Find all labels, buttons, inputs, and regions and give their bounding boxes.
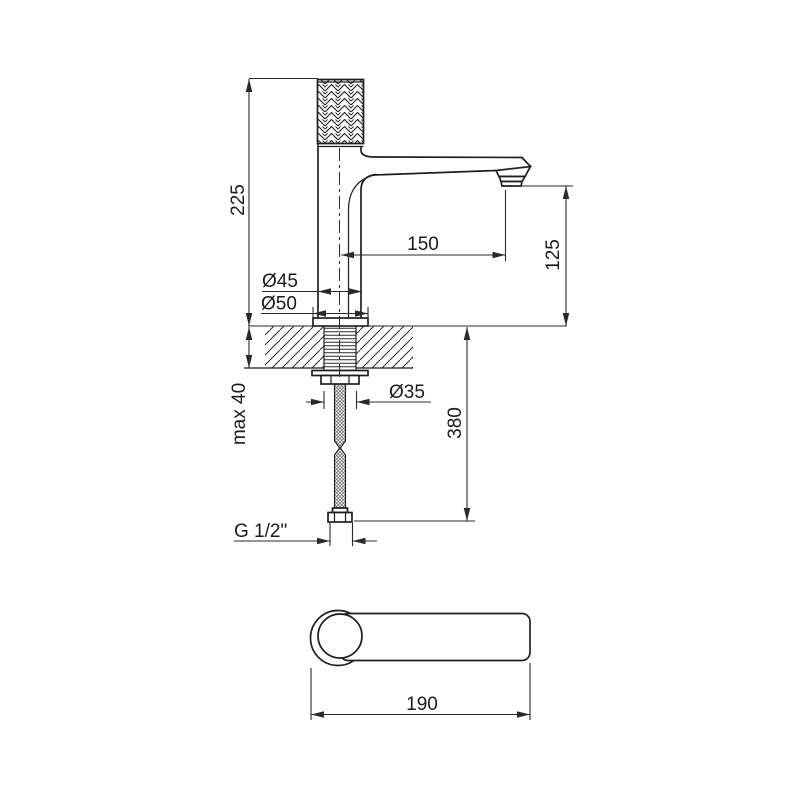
arrowhead-inward-right [317, 538, 330, 545]
arrowhead-down [464, 508, 471, 521]
aerator-step-1 [496, 167, 531, 177]
fitting-hex [328, 513, 352, 523]
arrowhead-left [313, 310, 326, 317]
dim-deck-thickness: max 40 [229, 327, 252, 445]
arrowhead-inward-right [311, 399, 324, 406]
arrowhead-right [493, 252, 506, 259]
dim-label-max40: max 40 [229, 383, 250, 445]
dim-outlet-height: 125 [514, 186, 573, 326]
dim-label-190: 190 [406, 694, 438, 715]
dim-label-d50: Ø50 [261, 294, 297, 315]
dim-label-150: 150 [407, 234, 439, 255]
dim-label-380: 380 [445, 407, 466, 439]
spout-tip-slant [522, 158, 531, 167]
aerator [496, 167, 531, 187]
spout-top-edge [361, 147, 522, 158]
faucet-top-view [311, 611, 531, 666]
arrowhead-down [563, 313, 570, 326]
arrowhead-left [341, 252, 354, 259]
arrowhead-inward-left [357, 399, 370, 406]
dim-label-d45: Ø45 [262, 271, 298, 292]
aerator-step-3 [501, 182, 522, 187]
arrowhead-left [318, 288, 331, 295]
body-outline-circle [318, 614, 362, 658]
column-right-edge [361, 175, 376, 319]
spout [361, 147, 531, 187]
arrowhead-up [464, 327, 471, 340]
dim-spout-reach: 150 [341, 190, 506, 261]
arrowhead-inward-left [353, 538, 366, 545]
dim-label-thread: G 1/2" [234, 521, 287, 542]
dim-top-view-length: 190 [311, 663, 530, 720]
dim-label-125: 125 [543, 239, 564, 271]
base-flange [313, 318, 368, 326]
spout-under-edge [374, 171, 496, 176]
dim-hole-diameter: Ø35 [306, 382, 431, 409]
hose-lower-segment [335, 448, 346, 509]
dim-label-d35: Ø35 [389, 382, 425, 403]
arrowhead-right [517, 711, 530, 718]
knurled-handle [318, 80, 364, 147]
faucet-dimension-drawing: 225 max 40 Ø45 Ø50 Ø35 15 [0, 0, 800, 800]
handle-knurl [318, 80, 364, 144]
arrowhead-down [246, 313, 253, 326]
hose-upper-segment [335, 384, 346, 449]
dim-connection-thread: G 1/2" [234, 521, 377, 546]
spout-outline [340, 614, 530, 661]
supply-hose [328, 384, 352, 522]
dim-label-225: 225 [228, 184, 249, 216]
arrowhead-up [246, 79, 253, 92]
arrowhead-right [349, 288, 362, 295]
dim-base-diameter: Ø50 [261, 294, 368, 319]
arrowhead-up [246, 327, 253, 340]
arrowhead-up [563, 186, 570, 199]
dim-body-diameter: Ø45 [262, 271, 362, 295]
technical-drawing-canvas: 225 max 40 Ø45 Ø50 Ø35 15 [0, 0, 800, 800]
arrowhead-left [311, 711, 324, 718]
arrowhead-down [246, 355, 253, 368]
